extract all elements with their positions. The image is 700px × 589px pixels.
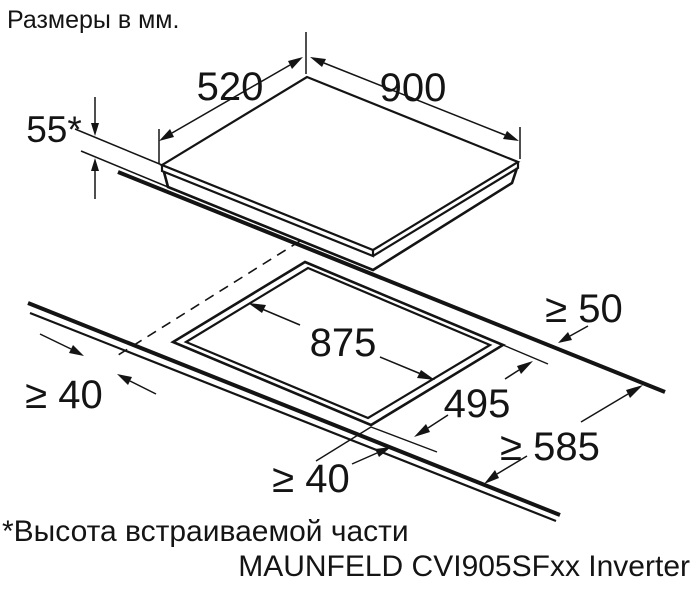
left-clearance-shaft-b: [130, 381, 156, 394]
width-arrowhead-left: [310, 57, 326, 67]
depth-arrowhead-lower: [159, 129, 174, 141]
cutout-depth-arrowhead-upper: [517, 361, 533, 374]
depth-label: 520: [197, 65, 264, 109]
left-clearance-arrowhead-b: [117, 374, 132, 385]
dimension-diagram: Размеры в мм. 55*: [0, 0, 700, 589]
height-arrowhead-down: [91, 123, 99, 136]
model-name: MAUNFELD CVI905SFxx Inverter: [238, 550, 690, 583]
left-clearance-arrowhead-a: [69, 345, 84, 356]
width-arrowhead-right: [503, 131, 519, 141]
front-clearance-dimension: ≥ 40: [272, 427, 391, 501]
worktop-depth-arrowhead-upper: [626, 385, 643, 398]
footnote-text: *Высота встраиваемой части: [2, 515, 409, 548]
left-clearance-shaft-a: [40, 334, 71, 349]
worktop-depth-shaft-upper: [581, 394, 628, 422]
worktop-depth-label: ≥ 585: [500, 425, 600, 469]
diagram-title: Размеры в мм.: [7, 6, 179, 34]
rear-clearance-dimension: ≥ 50: [545, 287, 623, 343]
cutout-depth-arrowhead-lower: [414, 424, 430, 437]
height-label: 55*: [26, 109, 82, 150]
cutout-depth-ext-upper: [503, 345, 548, 364]
height-arrowhead-up: [91, 158, 99, 171]
width-label: 900: [380, 66, 447, 110]
front-clearance-shaft: [352, 453, 377, 464]
rear-clearance-label: ≥ 50: [545, 287, 623, 331]
diagram-canvas: Размеры в мм. 55*: [0, 0, 700, 589]
front-clearance-label: ≥ 40: [272, 457, 350, 501]
left-clearance-label: ≥ 40: [25, 373, 103, 417]
height-ext-top: [75, 129, 162, 165]
rear-clearance-arrowhead: [558, 332, 572, 343]
cutout-depth-shaft-upper: [505, 370, 519, 379]
cutout-width-label: 875: [310, 321, 377, 365]
depth-arrowhead-upper: [288, 57, 303, 69]
cutout-depth-label: 495: [444, 382, 511, 426]
worktop-depth-arrowhead-lower: [484, 470, 499, 484]
